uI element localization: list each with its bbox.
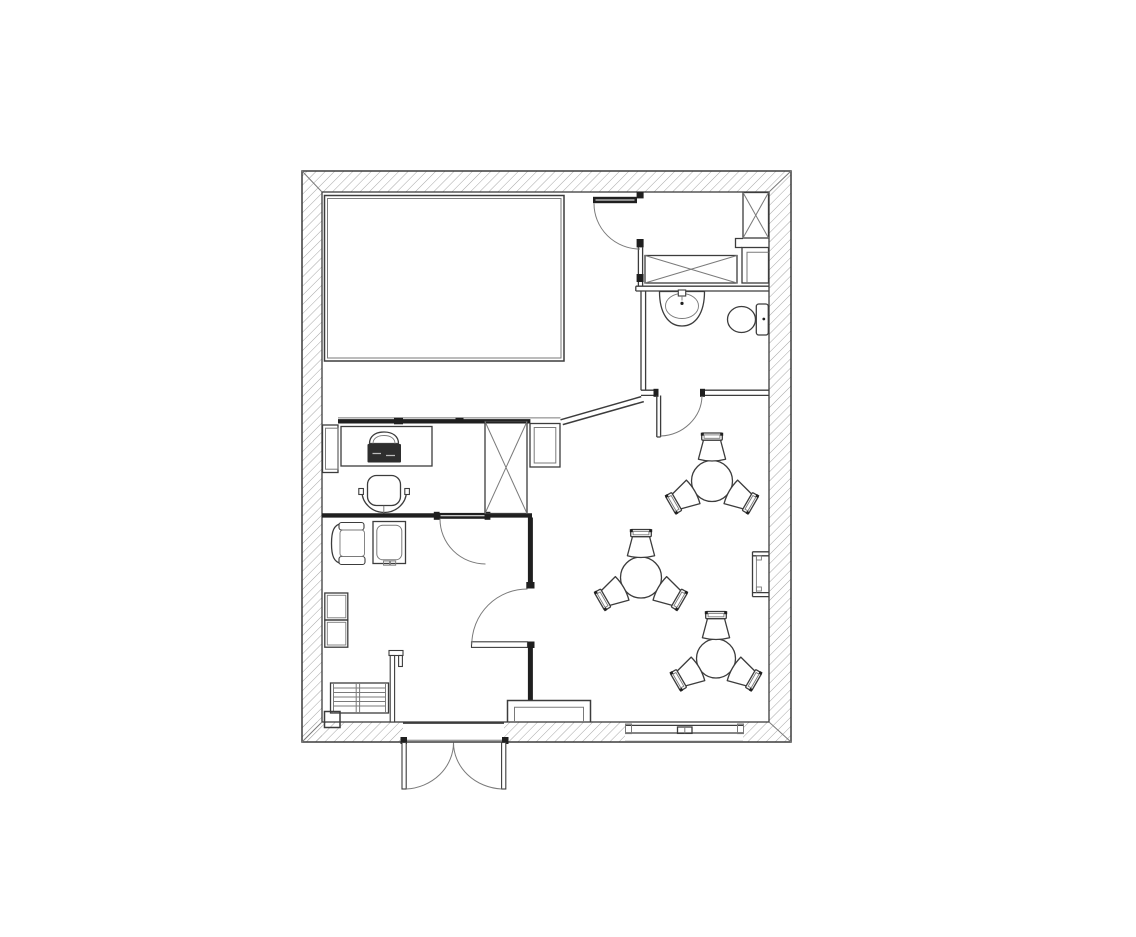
door-leaf-left [402, 743, 406, 790]
cafe-table-group-1 [663, 433, 760, 517]
lounge-side-door-leaf [472, 642, 528, 648]
armchair-armrest [339, 523, 364, 531]
radiator-bench [331, 683, 389, 713]
floorplan-drawing: Black-and-white architectural floor plan… [0, 0, 1136, 937]
hall-diagonal-wall [561, 397, 644, 425]
diagonal-wall-line [561, 397, 642, 420]
wall-shelf [325, 620, 348, 647]
utility-low-cabinet [645, 256, 737, 284]
partition-wall [390, 656, 394, 723]
desk-lamp-dome [370, 432, 399, 444]
wall-radiator-bracket [756, 587, 761, 591]
lounge-side-door-swing-arc [472, 589, 528, 645]
wall-tick [394, 418, 403, 425]
toilet-flush-button [762, 318, 765, 321]
wall-block [637, 274, 644, 282]
cafe-table-group-3 [668, 611, 764, 694]
desk-chair-armrest [405, 489, 410, 495]
door-jamb [526, 582, 534, 589]
entry-counter-inner [515, 707, 584, 722]
duct-box-inner [534, 428, 556, 464]
bathroom-door-leaf [657, 396, 661, 438]
partition-cap [389, 651, 403, 656]
door-swing-arc-right [453, 743, 501, 790]
bathroom [636, 286, 769, 437]
tub-chair [627, 529, 654, 557]
armchair-seat [340, 530, 365, 557]
window-sill-niche [323, 425, 339, 473]
diagonal-wall-line [563, 402, 644, 425]
partition-return [399, 656, 403, 667]
wall-tick [456, 418, 464, 424]
lounge-room [325, 518, 535, 728]
partition-stub [389, 651, 403, 723]
cafe-area [508, 433, 770, 722]
cafe-tables-layer [592, 433, 763, 694]
sink-faucet [678, 290, 685, 296]
side-table-top [377, 525, 402, 560]
wall-right [769, 192, 791, 722]
floorplan-page: Black-and-white architectural floor plan… [0, 0, 1136, 937]
tub-chair [702, 611, 729, 639]
platform-inner [328, 199, 562, 359]
door-jamb [637, 239, 644, 247]
door-jamb [637, 192, 644, 198]
window-sill-niche-inner [326, 428, 339, 469]
door-jamb [654, 389, 659, 397]
cafe-table-group-2 [592, 529, 689, 613]
bathroom-top-wall [636, 286, 769, 291]
wall-radiator-bracket [756, 556, 761, 560]
office-shaft [485, 422, 527, 514]
bathroom-door-swing-arc [661, 396, 702, 436]
wall-top [302, 171, 791, 192]
door-jamb [700, 389, 705, 397]
toilet-bowl [728, 307, 756, 333]
tub-chair [698, 433, 725, 461]
wall-shelf-inner [327, 595, 346, 618]
door-swing-arc-left [406, 743, 453, 790]
corner-duct-inner [747, 252, 769, 283]
platform-outer [325, 196, 565, 362]
entry-counter [508, 701, 591, 723]
armchair-armrest [339, 557, 365, 565]
entry-counter-outer [508, 701, 591, 723]
wall-left [302, 192, 322, 742]
wall-shelf-inner [327, 622, 346, 645]
wall-shelf [325, 593, 348, 620]
corner-duct [742, 248, 769, 284]
desk-chair-seat [368, 476, 401, 506]
office-nook [322, 418, 561, 564]
office-door-swing-arc [440, 519, 486, 564]
utility-tall-cabinet [743, 193, 769, 239]
utility-door-swing-arc [594, 204, 640, 250]
wall-radiator-frame [753, 552, 770, 597]
desk-chair-armrest [359, 489, 364, 495]
entrance-opening [403, 721, 504, 743]
door-leaf-right [502, 743, 506, 790]
radiator-posts [334, 683, 386, 713]
toilet-tank [756, 304, 768, 335]
sink-drain [680, 302, 683, 305]
bathroom-left-wall [641, 291, 646, 390]
large-rectangular-platform [325, 196, 565, 362]
desk-lamp-dome-inner [373, 436, 395, 444]
wall-radiator [753, 552, 770, 597]
utility-step [736, 239, 744, 248]
